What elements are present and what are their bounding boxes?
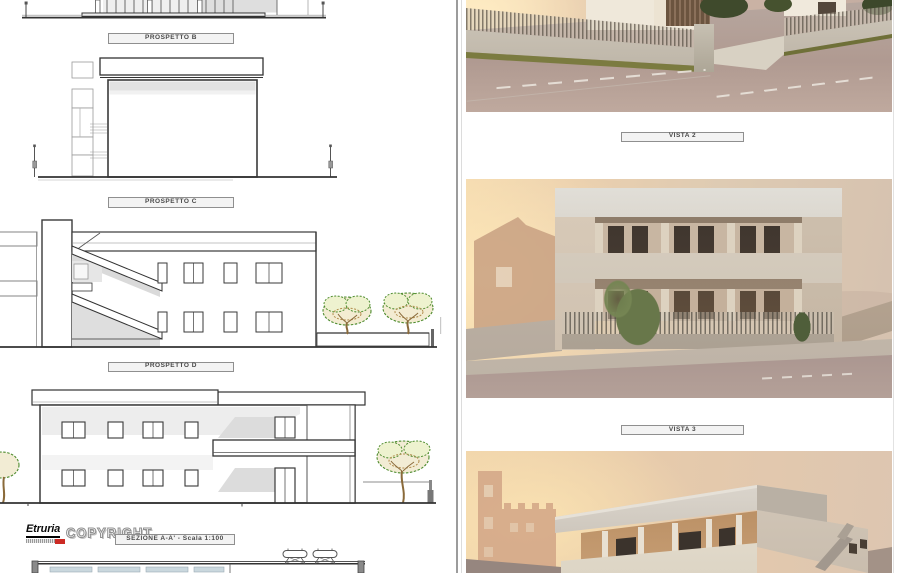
etruria-red-chip	[55, 539, 65, 544]
etruria-tagline-strip	[26, 539, 65, 543]
roofs	[32, 390, 365, 405]
tree	[323, 296, 371, 334]
render-vista1-street-corner	[466, 0, 892, 112]
windows	[158, 263, 282, 332]
small-tree	[466, 179, 892, 398]
plate-vista-2: VISTA 2	[621, 132, 744, 142]
prospetto-d-drawing	[0, 213, 445, 353]
sheet-divider-line	[456, 0, 458, 573]
building-body	[100, 58, 263, 177]
tree	[377, 441, 430, 503]
stair-tower	[72, 62, 107, 176]
sezione-aa-drawing	[0, 387, 440, 509]
plate-prospetto-b: PROSPETTO B	[108, 33, 234, 44]
plate-sezione-aa: SEZIONE A-A' - Scala 1:100	[115, 534, 235, 545]
section-window-fills	[50, 567, 224, 572]
facade	[40, 405, 355, 503]
tree	[0, 452, 19, 503]
right-sheet-border	[893, 0, 894, 573]
left-cut-structure	[0, 232, 37, 347]
plate-vista-3: VISTA 3	[621, 425, 744, 435]
railing-panels	[96, 0, 278, 14]
lower-section-drawing	[28, 548, 368, 573]
render-vista3-roof-corner	[466, 451, 892, 573]
prospetto-b-drawing	[20, 0, 330, 22]
etruria-logo: Etruria	[26, 519, 68, 543]
prospetto-c-drawing	[28, 56, 338, 181]
plate-prospetto-c: PROSPETTO C	[108, 197, 234, 208]
render-vista2-front-facade	[466, 179, 892, 398]
plate-prospetto-d: PROSPETTO D	[108, 362, 234, 372]
tree	[383, 293, 433, 334]
etruria-brand-text: Etruria	[26, 524, 60, 538]
sheet-divider-line-light	[461, 0, 462, 573]
architectural-sheet: PROSPETTO B	[0, 0, 899, 573]
